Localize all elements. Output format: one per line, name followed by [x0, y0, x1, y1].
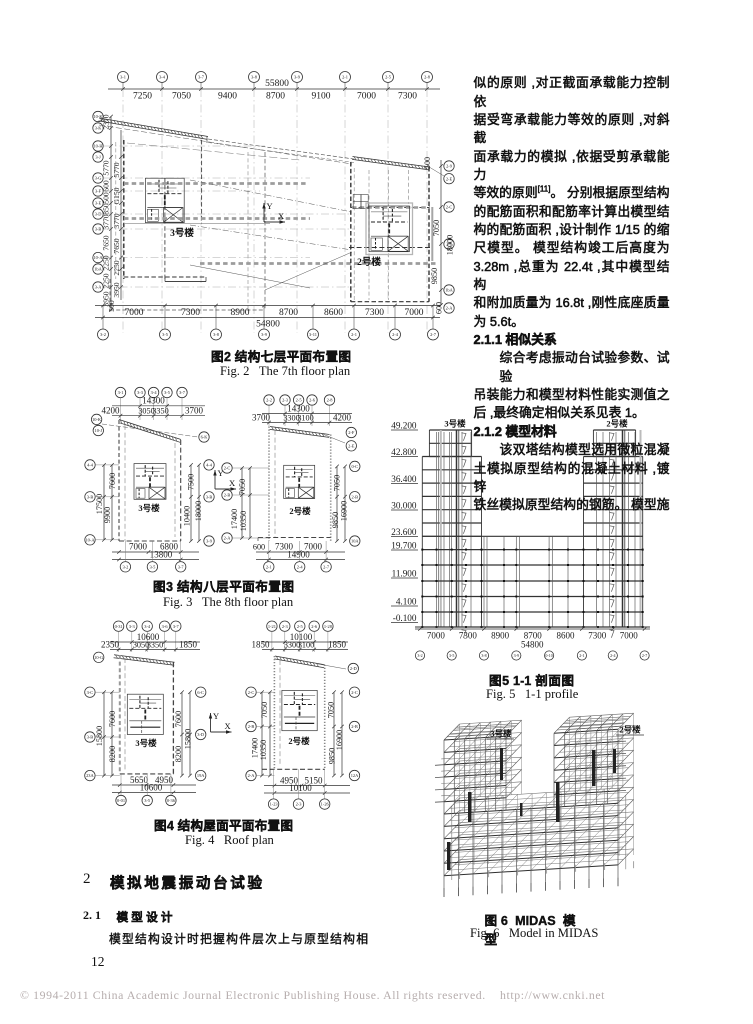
- svg-text:1-23: 1-23: [270, 802, 279, 807]
- svg-text:1850: 1850: [179, 640, 198, 650]
- svg-text:2-3: 2-3: [282, 624, 289, 629]
- svg-text:850: 850: [102, 203, 111, 215]
- svg-text:10600: 10600: [140, 782, 163, 792]
- svg-text:1-26: 1-26: [321, 802, 330, 807]
- svg-text:500: 500: [102, 192, 111, 204]
- svg-text:3-4: 3-4: [159, 75, 166, 80]
- svg-text:17400: 17400: [230, 509, 239, 529]
- svg-text:2-E: 2-E: [446, 176, 453, 181]
- svg-text:2-3: 2-3: [296, 802, 303, 807]
- svg-text:3-2: 3-2: [417, 653, 422, 658]
- svg-text:2号楼: 2号楼: [288, 736, 310, 746]
- svg-text:3-1: 3-1: [120, 75, 126, 80]
- svg-text:3-B: 3-B: [206, 494, 213, 499]
- svg-text:0-01: 0-01: [117, 798, 125, 803]
- svg-text:2-6: 2-6: [309, 398, 316, 403]
- svg-text:3号楼: 3号楼: [135, 738, 157, 748]
- svg-text:2250: 2250: [102, 273, 111, 288]
- svg-text:2350: 2350: [101, 640, 120, 650]
- svg-text:600: 600: [253, 543, 265, 552]
- svg-text:7050: 7050: [432, 220, 441, 236]
- svg-text:9100: 9100: [312, 92, 331, 102]
- svg-text:3-B: 3-B: [95, 227, 102, 232]
- svg-text:2-4: 2-4: [392, 332, 399, 337]
- svg-text:7300: 7300: [181, 308, 200, 318]
- svg-text:8200: 8200: [174, 746, 183, 762]
- svg-text:3-E: 3-E: [95, 201, 102, 206]
- svg-text:7000: 7000: [357, 92, 376, 102]
- svg-text:3-B: 3-B: [87, 494, 94, 499]
- svg-text:7300: 7300: [365, 308, 384, 318]
- svg-text:7500: 7500: [187, 474, 196, 490]
- svg-text:2-4: 2-4: [610, 653, 615, 658]
- svg-text:2号楼: 2号楼: [357, 256, 381, 268]
- svg-text:2-B: 2-B: [224, 493, 231, 498]
- svg-text:2-B: 2-B: [248, 724, 255, 729]
- svg-text:4200: 4200: [102, 406, 121, 416]
- svg-text:7300: 7300: [398, 92, 417, 102]
- svg-text:3-1: 3-1: [118, 390, 124, 395]
- svg-text:3-4: 3-4: [144, 624, 151, 629]
- svg-text:3100: 3100: [297, 414, 313, 423]
- svg-text:3号楼: 3号楼: [444, 419, 466, 429]
- svg-text:7050: 7050: [238, 479, 247, 495]
- svg-text:3-9: 3-9: [206, 539, 213, 544]
- svg-text:7300: 7300: [588, 631, 607, 641]
- svg-text:1bA: 1bA: [445, 288, 453, 293]
- svg-text:600: 600: [102, 180, 111, 192]
- svg-text:2-3: 2-3: [282, 398, 289, 403]
- svg-text:10-G: 10-G: [94, 655, 104, 660]
- svg-text:3-C: 3-C: [87, 690, 94, 695]
- svg-text:1-28: 1-28: [324, 624, 333, 629]
- svg-text:3-9: 3-9: [514, 653, 519, 658]
- svg-text:8900: 8900: [491, 631, 510, 641]
- svg-text:2-C: 2-C: [351, 690, 358, 695]
- svg-text:3-3: 3-3: [137, 390, 144, 395]
- svg-text:3700: 3700: [252, 413, 271, 423]
- svg-text:2-C: 2-C: [446, 205, 453, 210]
- svg-text:8200: 8200: [108, 746, 117, 762]
- svg-text:3100: 3100: [298, 641, 314, 650]
- svg-text:3-5: 3-5: [449, 653, 454, 658]
- svg-text:3号楼: 3号楼: [490, 729, 512, 739]
- svg-text:3-3: 3-3: [129, 624, 136, 629]
- svg-text:7650: 7650: [112, 238, 121, 253]
- svg-text:2-D: 2-D: [350, 666, 357, 671]
- svg-text:5770: 5770: [112, 162, 121, 177]
- svg-text:2-1: 2-1: [579, 653, 584, 658]
- svg-text:4.100: 4.100: [396, 597, 417, 607]
- svg-text:2号楼: 2号楼: [619, 725, 641, 735]
- svg-text:2-5: 2-5: [385, 75, 392, 80]
- svg-text:2-B: 2-B: [351, 724, 358, 729]
- svg-text:7300: 7300: [459, 631, 478, 641]
- svg-text:7050: 7050: [172, 92, 191, 102]
- svg-text:3350: 3350: [152, 407, 168, 416]
- svg-text:3-2: 3-2: [122, 564, 128, 569]
- svg-text:2-2: 2-2: [266, 398, 272, 403]
- svg-text:Y: Y: [213, 711, 219, 721]
- svg-text:54800: 54800: [256, 320, 280, 330]
- svg-text:7000: 7000: [427, 631, 446, 641]
- svg-text:10100: 10100: [289, 783, 312, 793]
- svg-text:10A: 10A: [351, 539, 359, 544]
- svg-text:1850: 1850: [328, 640, 347, 650]
- svg-text:2-1: 2-1: [266, 564, 272, 569]
- svg-text:7600: 7600: [174, 711, 183, 727]
- svg-text:7050: 7050: [260, 702, 269, 718]
- svg-text:3-7: 3-7: [178, 564, 185, 569]
- svg-text:3-8: 3-8: [481, 653, 486, 658]
- svg-text:19.700: 19.700: [391, 541, 417, 551]
- svg-text:2-F: 2-F: [348, 430, 355, 435]
- svg-text:6-C: 6-C: [197, 690, 204, 695]
- svg-text:7600: 7600: [108, 473, 117, 489]
- svg-text:600: 600: [435, 302, 444, 314]
- svg-text:1850: 1850: [252, 640, 271, 650]
- svg-text:2250: 2250: [112, 260, 121, 275]
- svg-text:7050: 7050: [333, 475, 342, 491]
- svg-text:3-7: 3-7: [173, 624, 180, 629]
- svg-text:2-B: 2-B: [352, 494, 359, 499]
- svg-text:54800: 54800: [521, 640, 544, 650]
- svg-text:3-7: 3-7: [198, 75, 205, 80]
- svg-text:3700: 3700: [185, 406, 204, 416]
- svg-text:3-7: 3-7: [179, 390, 186, 395]
- svg-text:0-10: 0-10: [545, 653, 552, 658]
- svg-text:3-2: 3-2: [100, 332, 106, 337]
- svg-text:10-K: 10-K: [92, 417, 102, 422]
- svg-text:10400: 10400: [183, 506, 192, 526]
- svg-text:23.600: 23.600: [391, 527, 417, 537]
- svg-text:3-D: 3-D: [197, 732, 204, 737]
- svg-text:8700: 8700: [279, 308, 298, 318]
- svg-text:11.900: 11.900: [392, 569, 417, 579]
- svg-text:500: 500: [423, 157, 432, 169]
- svg-text:4-4: 4-4: [206, 463, 213, 468]
- svg-text:49.200: 49.200: [391, 421, 417, 431]
- svg-text:10350: 10350: [239, 511, 248, 531]
- svg-text:0-31: 0-31: [115, 624, 123, 629]
- svg-text:16900: 16900: [340, 501, 349, 521]
- svg-text:9850: 9850: [430, 268, 439, 284]
- svg-text:3-6: 3-6: [162, 624, 169, 629]
- svg-text:3950: 3950: [112, 282, 121, 297]
- svg-text:8700: 8700: [266, 92, 285, 102]
- svg-text:2-1: 2-1: [351, 332, 357, 337]
- svg-text:19A: 19A: [197, 773, 205, 778]
- svg-text:9400: 9400: [218, 92, 237, 102]
- svg-text:42.800: 42.800: [391, 447, 417, 457]
- svg-text:3-8: 3-8: [213, 332, 220, 337]
- svg-text:3-5: 3-5: [162, 332, 169, 337]
- svg-text:8900: 8900: [231, 308, 250, 318]
- svg-text:55800: 55800: [265, 79, 289, 89]
- svg-text:2-8: 2-8: [327, 398, 334, 403]
- svg-text:2-A: 2-A: [224, 536, 232, 541]
- svg-text:3-4: 3-4: [151, 390, 158, 395]
- svg-text:7600: 7600: [108, 711, 117, 727]
- svg-text:9900: 9900: [103, 507, 112, 523]
- svg-text:X: X: [229, 478, 235, 488]
- svg-text:G150: G150: [112, 187, 121, 204]
- svg-text:36.400: 36.400: [391, 474, 417, 484]
- svg-text:13800: 13800: [150, 550, 173, 560]
- svg-text:3-9: 3-9: [294, 75, 301, 80]
- svg-text:4-4: 4-4: [87, 463, 94, 468]
- svg-text:5770: 5770: [102, 160, 111, 175]
- svg-text:3号楼: 3号楼: [138, 503, 160, 513]
- svg-text:2-7: 2-7: [642, 653, 647, 658]
- svg-text:2-4: 2-4: [297, 564, 304, 569]
- svg-text:2-9: 2-9: [446, 164, 453, 169]
- svg-text:-0.100: -0.100: [393, 613, 417, 623]
- svg-text:10350: 10350: [259, 740, 268, 760]
- svg-text:6-K: 6-K: [201, 435, 209, 440]
- svg-text:2-7: 2-7: [430, 332, 437, 337]
- svg-text:X: X: [278, 211, 284, 221]
- svg-text:2号楼: 2号楼: [289, 506, 311, 516]
- svg-text:Y: Y: [267, 201, 273, 211]
- svg-text:7250: 7250: [133, 92, 152, 102]
- svg-text:3号楼: 3号楼: [170, 227, 194, 239]
- svg-text:15800: 15800: [184, 729, 193, 749]
- svg-text:15800: 15800: [95, 726, 104, 746]
- svg-text:3770: 3770: [112, 213, 121, 228]
- svg-text:8600: 8600: [324, 308, 343, 318]
- svg-text:3-9: 3-9: [261, 332, 268, 337]
- svg-text:0-C: 0-C: [352, 464, 359, 469]
- svg-text:2-A: 2-A: [446, 306, 454, 311]
- svg-text:3770: 3770: [102, 214, 111, 229]
- svg-text:2-5: 2-5: [297, 624, 304, 629]
- svg-text:3-D: 3-D: [95, 212, 102, 217]
- svg-text:0-36: 0-36: [167, 798, 176, 803]
- svg-text:2-8: 2-8: [424, 75, 431, 80]
- svg-text:12A: 12A: [351, 773, 359, 778]
- svg-text:3-8: 3-8: [251, 75, 258, 80]
- svg-text:10-J: 10-J: [95, 428, 103, 433]
- svg-text:16900: 16900: [335, 730, 344, 750]
- svg-text:2-1: 2-1: [342, 75, 348, 80]
- svg-text:23A: 23A: [86, 773, 94, 778]
- svg-text:30.000: 30.000: [391, 501, 417, 511]
- svg-text:2-6: 2-6: [311, 624, 318, 629]
- svg-text:2-7: 2-7: [323, 564, 330, 569]
- svg-text:3-11: 3-11: [309, 332, 317, 337]
- svg-text:7000: 7000: [129, 542, 148, 552]
- svg-text:3-5: 3-5: [144, 798, 151, 803]
- svg-text:4200: 4200: [333, 413, 352, 423]
- svg-text:2-C: 2-C: [248, 690, 255, 695]
- svg-text:7650: 7650: [102, 235, 111, 250]
- svg-text:18000: 18000: [446, 235, 455, 255]
- svg-text:7000: 7000: [620, 631, 639, 641]
- svg-text:10-A: 10-A: [85, 537, 95, 542]
- svg-text:3-J: 3-J: [95, 155, 101, 160]
- svg-text:14300: 14300: [142, 396, 165, 406]
- svg-text:2-A: 2-A: [248, 773, 256, 778]
- svg-text:10-H: 10-H: [93, 144, 103, 149]
- svg-text:3350: 3350: [147, 641, 163, 650]
- svg-text:2-E: 2-E: [348, 443, 355, 448]
- svg-text:3-5: 3-5: [164, 390, 171, 395]
- svg-text:1-21: 1-21: [268, 624, 276, 629]
- svg-text:8600: 8600: [557, 631, 576, 641]
- svg-text:2-C: 2-C: [224, 466, 231, 471]
- svg-text:2-5: 2-5: [296, 398, 303, 403]
- svg-text:7000: 7000: [405, 308, 424, 318]
- svg-text:14300: 14300: [287, 404, 310, 414]
- svg-text:X: X: [225, 721, 231, 731]
- svg-text:18000: 18000: [194, 501, 203, 521]
- svg-text:7050: 7050: [327, 702, 336, 718]
- svg-text:3-B: 3-B: [87, 735, 94, 740]
- svg-text:7000: 7000: [125, 308, 144, 318]
- svg-text:14900: 14900: [287, 550, 310, 560]
- svg-text:3-5: 3-5: [149, 564, 156, 569]
